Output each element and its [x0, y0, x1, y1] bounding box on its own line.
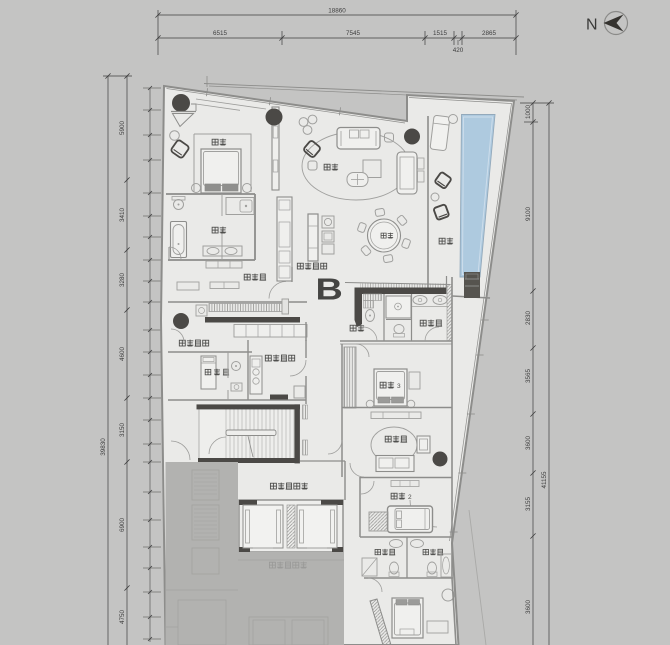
svg-text:1515: 1515 [433, 30, 448, 37]
svg-text:5900: 5900 [119, 121, 126, 136]
svg-text:3600: 3600 [525, 436, 532, 451]
svg-text:39830: 39830 [100, 438, 107, 456]
svg-text:3410: 3410 [119, 208, 126, 223]
svg-text:3: 3 [397, 383, 401, 390]
svg-text:18860: 18860 [328, 8, 346, 15]
svg-text:6515: 6515 [213, 30, 228, 37]
svg-text:41155: 41155 [541, 471, 548, 489]
svg-text:7545: 7545 [346, 30, 361, 37]
svg-text:3280: 3280 [119, 273, 126, 288]
svg-text:N: N [586, 17, 598, 34]
svg-text:9100: 9100 [525, 207, 532, 222]
svg-text:1000: 1000 [525, 105, 532, 120]
svg-text:3155: 3155 [525, 497, 532, 512]
svg-text:4750: 4750 [119, 610, 126, 625]
svg-text:420: 420 [453, 47, 464, 54]
svg-text:3565: 3565 [525, 369, 532, 384]
svg-text:2830: 2830 [525, 311, 532, 326]
svg-text:2: 2 [408, 494, 412, 501]
svg-text:4600: 4600 [119, 347, 126, 362]
svg-text:2865: 2865 [482, 30, 497, 37]
svg-text:6900: 6900 [119, 518, 126, 533]
svg-text:B: B [316, 273, 343, 307]
svg-text:3150: 3150 [119, 423, 126, 438]
svg-text:3600: 3600 [525, 600, 532, 615]
